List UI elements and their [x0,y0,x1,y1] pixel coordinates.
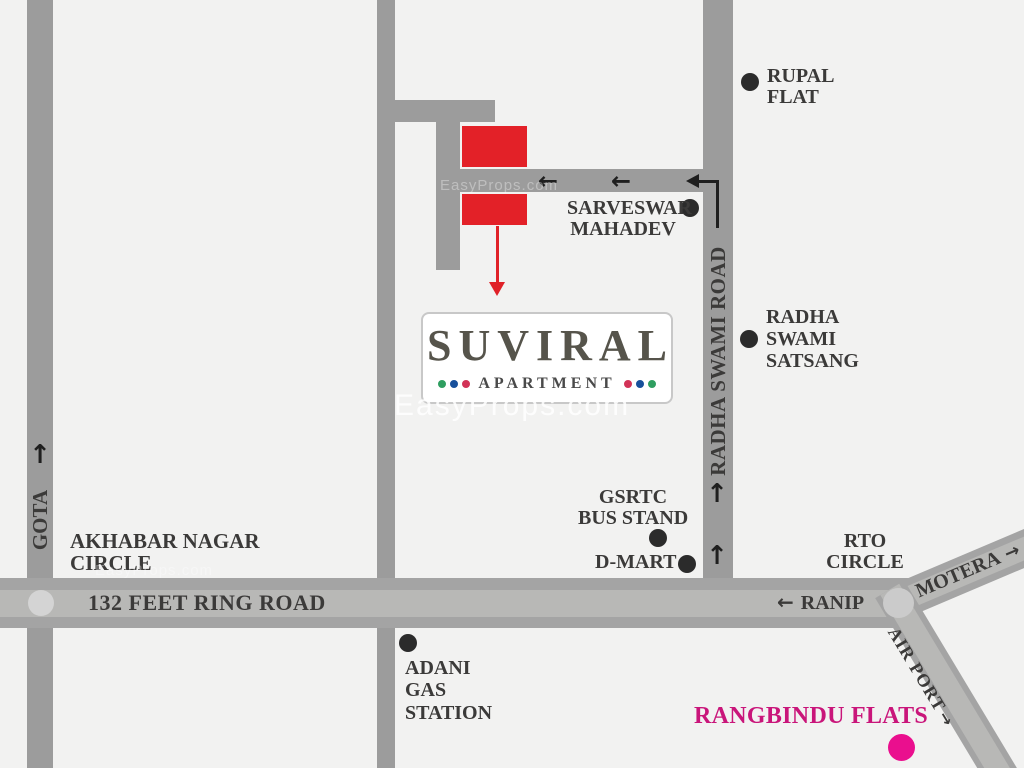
label-gsrtc-bus-stand: GSRTC BUS STAND [578,487,688,529]
label-rangbindu-flats: RANGBINDU FLATS [694,704,928,729]
label-line: STATION [405,702,492,724]
label-line: SATSANG [766,350,859,372]
label-line: FLAT [767,87,834,108]
radha-road-arrow-north-1: ↑ [706,479,728,509]
logo-dot-red-icon [624,380,632,388]
radha-road-arrow-north-2: ↑ [706,541,728,571]
label-line: GSRTC [578,487,688,508]
label-sarveswar-mahadev: SARVESWAR MAHADEV [567,198,679,240]
gota-ring-junction-circle [28,590,54,616]
ranip-arrow-west: ← [777,590,794,614]
road-top-branch-horizontal [393,100,495,122]
label-line: BUS STAND [578,508,688,529]
label-line: SWAMI [766,328,859,350]
logo-dot-blue-icon [636,380,644,388]
rangbindu-flats-dot [888,734,915,761]
suviral-building-block-2 [462,194,527,225]
route-elbow-arrowhead [686,174,699,188]
label-line: RTO [820,531,910,552]
road-gota-vertical [27,0,53,768]
logo-dot-red-icon [462,380,470,388]
label-line: RADHA [766,306,859,328]
label-line: CIRCLE [820,552,910,573]
location-map: ← ← ↑ ↑ ↑ RUPAL FLAT SARVESWAR MAHADEV R… [0,0,1024,768]
suviral-pointer-arrowhead [489,282,505,296]
logo-dot-blue-icon [450,380,458,388]
watermark-easyprops: EasyProps.com [394,389,630,423]
road-label-ring-road: 132 FEET RING ROAD [88,591,326,614]
dmart-dot [678,555,696,573]
road-label-radha-swami: RADHA SWAMI ROAD [707,246,729,476]
rupal-flat-dot [741,73,759,91]
road-label-gota: GOTA [29,490,51,550]
logo-title: SUVIRAL [420,324,674,368]
road-branch-vertical [436,122,460,270]
suviral-building-block-1 [462,126,527,167]
label-adani-gas-station: ADANI GAS STATION [405,657,492,724]
rto-junction-circle [883,588,914,618]
logo-dot-green-icon [438,380,446,388]
label-line: SARVESWAR [567,198,679,219]
lane-arrow-west-2: ← [611,167,631,195]
route-elbow-line [697,180,719,228]
label-line: GAS [405,679,492,701]
label-rto-circle: RTO CIRCLE [820,531,910,573]
gota-road-arrow-north: ↑ [29,440,51,470]
gsrtc-bus-stand-dot [649,529,667,547]
label-rupal-flat: RUPAL FLAT [767,66,834,108]
watermark-easyprops-faint: EasyProps.com [440,177,558,194]
watermark-easyprops-faint: EasyProps.com [95,562,213,579]
logo-dot-green-icon [648,380,656,388]
radha-swami-satsang-dot [740,330,758,348]
label-dmart: D-MART [595,552,677,573]
label-line: MAHADEV [567,219,679,240]
road-label-ranip: ←RANIP [777,592,864,614]
label-line: RANIP [801,592,864,614]
label-line: RUPAL [767,66,834,87]
label-line: ADANI [405,657,492,679]
suviral-pointer-line [496,226,499,284]
label-radha-swami-satsang: RADHA SWAMI SATSANG [766,306,859,372]
adani-gas-station-dot [399,634,417,652]
label-line: AKHABAR NAGAR [70,530,260,552]
